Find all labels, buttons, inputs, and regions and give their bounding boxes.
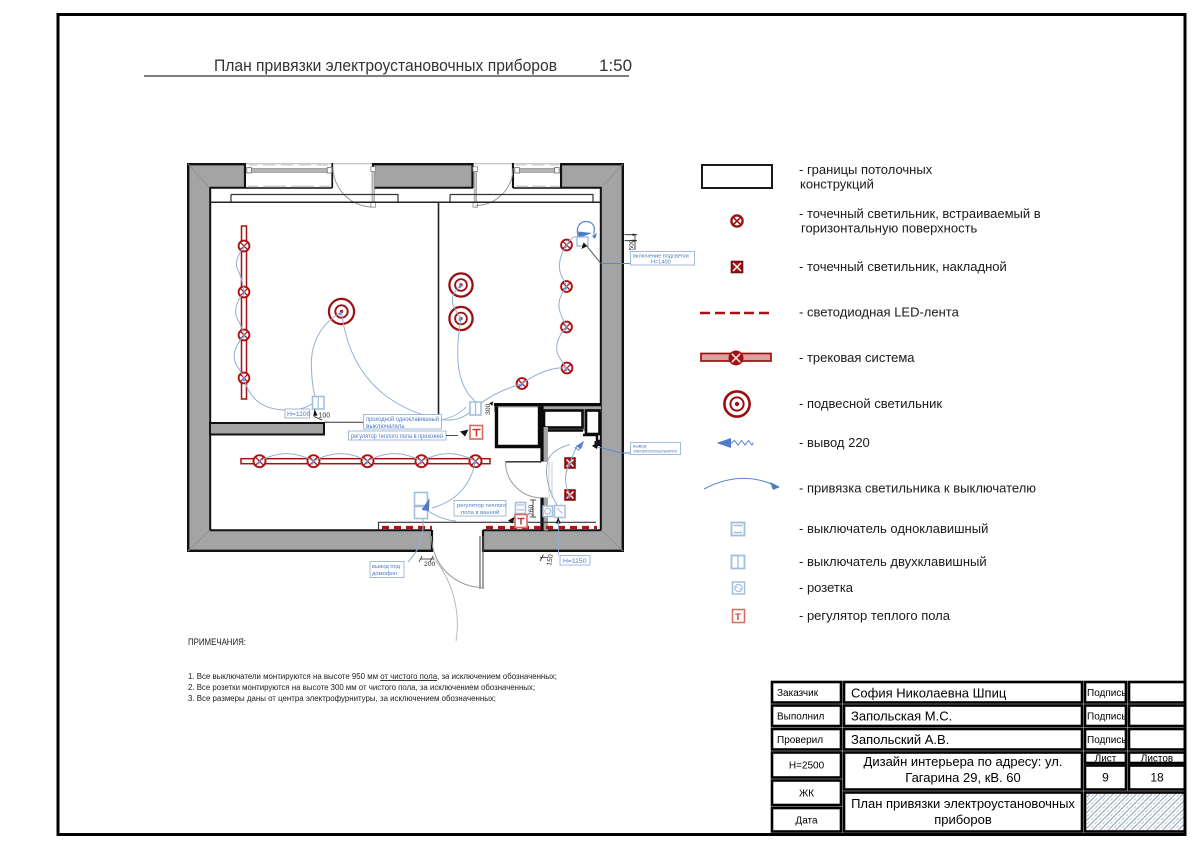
svg-text:260: 260 [528, 504, 535, 516]
svg-text:Запольский А.В.: Запольский А.В. [851, 732, 949, 747]
svg-text:- вывод 220: - вывод 220 [799, 435, 870, 450]
svg-text:- выключатель одноклавишный: - выключатель одноклавишный [799, 521, 988, 536]
svg-text:H=1150: H=1150 [563, 558, 587, 565]
svg-text:- привязка светильника к выклю: - привязка светильника к выключателю [799, 481, 1036, 496]
svg-text:ЖК: ЖК [799, 789, 814, 800]
svg-text:Выполнил: Выполнил [777, 712, 825, 723]
svg-text:18: 18 [1150, 771, 1164, 785]
svg-text:- точечный светильник, накладн: - точечный светильник, накладной [799, 259, 1007, 274]
svg-text:Дизайн интерьера по адресу: ул: Дизайн интерьера по адресу: ул. [864, 754, 1063, 769]
svg-text:- подвесной светильник: - подвесной светильник [799, 396, 942, 411]
svg-text:План привязки электроустановоч: План привязки электроустановочных прибор… [214, 56, 557, 75]
svg-text:София Николаевна Шпиц: София Николаевна Шпиц [851, 686, 1007, 701]
svg-text:- границы потолочных: - границы потолочных [799, 162, 933, 177]
svg-text:План привязки электроустановоч: План привязки электроустановочных [851, 796, 1075, 811]
svg-text:1:50: 1:50 [599, 56, 632, 75]
svg-text:300: 300 [485, 403, 492, 415]
svg-text:- светодиодная LED-лента: - светодиодная LED-лента [799, 305, 960, 320]
svg-text:100: 100 [319, 413, 331, 420]
svg-text:пола в ванной: пола в ванной [461, 509, 499, 516]
svg-text:- розетка: - розетка [799, 580, 854, 595]
svg-text:Гагарина 29, кВ. 60: Гагарина 29, кВ. 60 [905, 770, 1020, 785]
svg-text:электрополотенцесушителя: электрополотенцесушителя [633, 449, 677, 454]
svg-text:- трековая система: - трековая система [799, 350, 915, 365]
svg-text:горизонтальную поверхность: горизонтальную поверхность [801, 221, 978, 236]
svg-text:Лист: Лист [1095, 754, 1117, 765]
svg-text:- регулятор теплого пола: - регулятор теплого пола [799, 608, 951, 623]
svg-text:- точечный светильник, встраив: - точечный светильник, встраиваемый в [799, 206, 1041, 221]
svg-text:Н=1400: Н=1400 [651, 260, 671, 266]
svg-text:Дата: Дата [795, 816, 818, 827]
svg-text:регулятор теплого: регулятор теплого [457, 503, 506, 509]
svg-text:Подпись: Подпись [1087, 735, 1127, 746]
svg-text:T: T [735, 612, 741, 623]
svg-text:H=1100: H=1100 [287, 411, 311, 418]
svg-text:- выключатель двухклавишный: - выключатель двухклавишный [799, 554, 987, 569]
svg-text:домофон: домофон [372, 571, 397, 577]
svg-text:Н=2500: Н=2500 [789, 761, 825, 772]
svg-text:конструкций: конструкций [800, 177, 874, 192]
svg-text:200: 200 [424, 561, 436, 568]
svg-text:1. Все выключатели монтируются: 1. Все выключатели монтируются на высоте… [188, 671, 557, 681]
svg-text:500: 500 [629, 239, 636, 250]
svg-text:Листов: Листов [1141, 754, 1174, 765]
svg-text:Подпись: Подпись [1087, 688, 1127, 699]
svg-text:регулятор теплого пола в прихо: регулятор теплого пола в прихожей [351, 432, 443, 440]
svg-text:Запольская М.С.: Запольская М.С. [851, 709, 952, 724]
svg-text:Проверил: Проверил [777, 735, 823, 746]
svg-text:9: 9 [1102, 771, 1109, 785]
svg-text:проходной одноклавишный: проходной одноклавишный [366, 415, 439, 423]
svg-text:2. Все розетки монтируются на: 2. Все розетки монтируются на высоте 300… [188, 682, 535, 692]
svg-text:3. Все размеры даны от центра: 3. Все размеры даны от центра электрофур… [188, 693, 496, 703]
svg-text:Заказчик: Заказчик [777, 688, 819, 699]
svg-text:приборов: приборов [934, 812, 992, 827]
svg-text:Подпись: Подпись [1087, 712, 1127, 723]
svg-text:ПРИМЕЧАНИЯ:: ПРИМЕЧАНИЯ: [188, 637, 246, 648]
svg-text:вывод под: вывод под [372, 564, 401, 570]
svg-text:выключатель: выключатель [366, 423, 405, 430]
